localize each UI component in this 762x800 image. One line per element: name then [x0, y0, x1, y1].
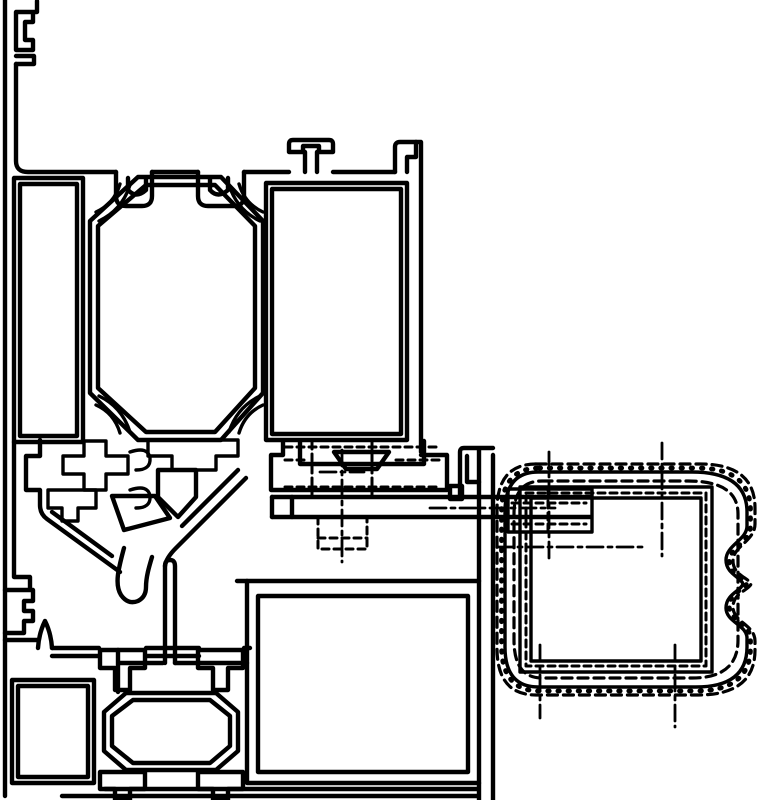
right-chamber — [266, 183, 407, 440]
left-chamber — [14, 178, 83, 442]
housing-inner-dashed — [514, 481, 738, 678]
screw-boss-curls — [96, 184, 263, 433]
roller-housing — [497, 464, 755, 695]
gasket-channels — [48, 440, 238, 521]
central-chamber — [90, 177, 263, 440]
cad-drawing-canvas: Aluminium door/window frame corner profi… — [0, 0, 762, 800]
thermal-web — [26, 440, 246, 663]
hook-clip — [450, 448, 493, 800]
cross-section-diagram: Aluminium door/window frame corner profi… — [0, 0, 762, 800]
